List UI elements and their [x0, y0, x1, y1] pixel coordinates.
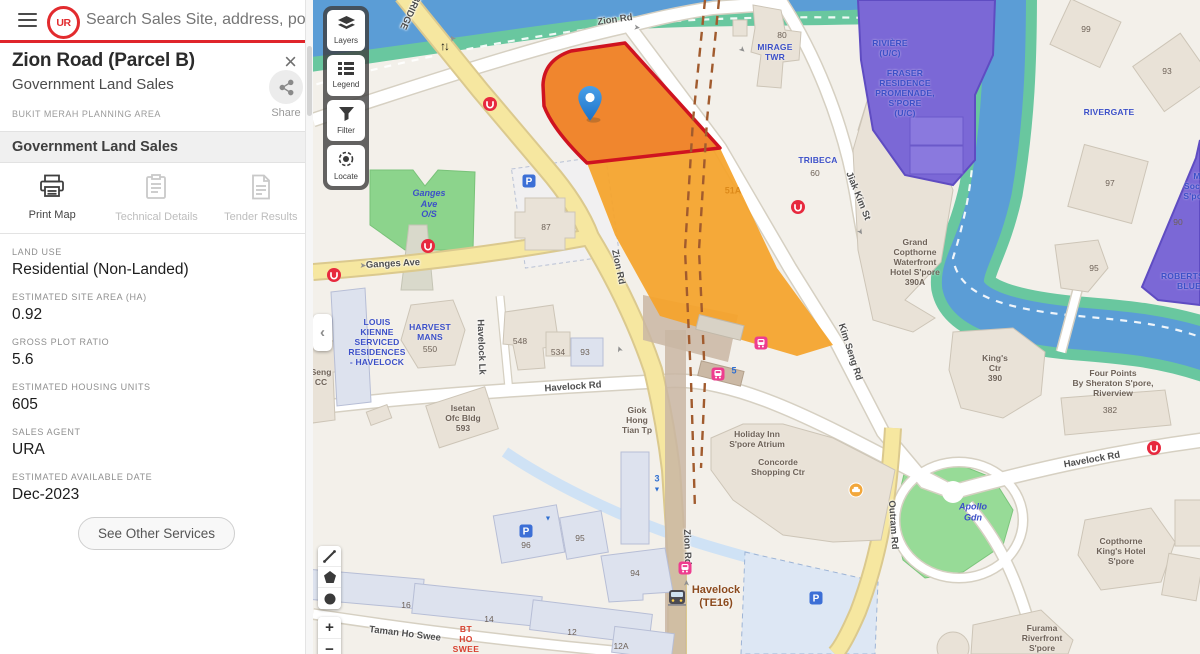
map-control-filter[interactable]: Filter	[327, 100, 365, 141]
section-header: Government Land Sales	[0, 131, 313, 163]
map-canvas[interactable]: Zion RdBRIDGEJiak Kim StKim Seng RdHavel…	[313, 0, 1200, 654]
app: Zion RdBRIDGEJiak Kim StKim Seng RdHavel…	[0, 0, 1200, 654]
subtitle: Government Land Sales	[12, 76, 299, 93]
pin-icon[interactable]	[577, 85, 604, 123]
app-header: UR Search Sales Site, address, postal co…	[0, 0, 313, 40]
share-icon	[269, 70, 303, 104]
blue-triangle-icon: ▼	[654, 487, 661, 494]
map-control-label: Locate	[334, 172, 358, 181]
zoom-control: + −	[318, 617, 341, 654]
scrollbar-thumb[interactable]	[307, 46, 312, 116]
detail-field: SALES AGENTURA	[12, 427, 301, 459]
action-label: Print Map	[0, 209, 104, 221]
share-label: Share	[269, 107, 303, 119]
side-panel: UR Search Sales Site, address, postal co…	[0, 0, 313, 654]
map-control-label: Legend	[333, 80, 360, 89]
tel-station-icon	[679, 562, 692, 575]
field-value: Residential (Non-Landed)	[12, 261, 301, 279]
road-arrow-icon: ➤	[684, 579, 691, 587]
parking-icon: P	[520, 525, 533, 538]
map-geography	[313, 0, 1200, 654]
blue-triangle-icon: ▼	[545, 516, 552, 523]
zoom-out-button[interactable]: −	[318, 639, 341, 654]
draw-tool-stack	[318, 546, 341, 609]
clipboard-icon	[104, 174, 208, 205]
page-title: Zion Road (Parcel B)	[12, 50, 299, 72]
road-arrow-icon: ➤	[617, 345, 624, 353]
share-button[interactable]: Share	[269, 70, 303, 119]
field-label: ESTIMATED AVAILABLE DATE	[12, 472, 301, 482]
tender-results-button: Tender Results	[209, 174, 313, 223]
detail-field: GROSS PLOT RATIO5.6	[12, 337, 301, 369]
action-label: Tender Results	[209, 211, 313, 223]
road-arrow-icon: ➤	[634, 24, 641, 32]
legend-icon	[338, 62, 354, 78]
parking-icon: P	[523, 175, 536, 188]
mrt-train-icon	[668, 590, 686, 606]
zoom-in-button[interactable]: +	[318, 617, 341, 639]
ura-badge-icon	[327, 268, 342, 283]
road-arrow-icon: ➤	[450, 34, 457, 42]
road-arrow-icon: ➤	[739, 46, 746, 54]
technical-details-button: Technical Details	[104, 174, 208, 223]
collapse-panel-button[interactable]: ‹	[313, 314, 332, 351]
field-label: SALES AGENT	[12, 427, 301, 437]
circle-tool[interactable]	[318, 588, 341, 609]
detail-field: LAND USEResidential (Non-Landed)	[12, 247, 301, 279]
field-value: 0.92	[12, 306, 301, 324]
svg-text:P: P	[526, 177, 533, 188]
map-control-legend[interactable]: Legend	[327, 55, 365, 96]
map-control-label: Layers	[334, 36, 358, 45]
see-other-services-button[interactable]: See Other Services	[78, 517, 235, 550]
field-label: ESTIMATED SITE AREA (HA)	[12, 292, 301, 302]
taxi-icon	[849, 483, 864, 498]
field-value: URA	[12, 441, 301, 459]
document-icon	[209, 174, 313, 205]
polygon-tool[interactable]	[318, 567, 341, 588]
svg-text:P: P	[813, 594, 820, 605]
map-control-layers[interactable]: Layers	[327, 10, 365, 51]
road-arrow-icon: ➤	[360, 262, 367, 270]
layers-icon	[338, 16, 355, 34]
ura-badge-icon	[1147, 441, 1162, 456]
map-control-label: Filter	[337, 126, 355, 135]
print-map-button[interactable]: Print Map	[0, 174, 104, 223]
scrollbar[interactable]	[305, 0, 313, 654]
map-control-stack: LayersLegendFilterLocate	[323, 6, 369, 190]
ura-logo[interactable]: UR	[47, 6, 80, 39]
ura-badge-icon	[483, 97, 498, 112]
field-label: LAND USE	[12, 247, 301, 257]
field-label: ESTIMATED HOUSING UNITS	[12, 382, 301, 392]
action-label: Technical Details	[104, 211, 208, 223]
filter-icon	[339, 107, 354, 124]
ura-badge-icon	[791, 200, 806, 215]
two-way-arrows-icon: ↑↓	[440, 40, 448, 52]
locate-icon	[338, 151, 354, 170]
detail-field: ESTIMATED HOUSING UNITS605	[12, 382, 301, 414]
printer-icon	[0, 174, 104, 203]
tel-station-icon	[755, 337, 768, 350]
field-value: 605	[12, 396, 301, 414]
field-value: 5.6	[12, 351, 301, 369]
field-label: GROSS PLOT RATIO	[12, 337, 301, 347]
parking-icon: P	[810, 592, 823, 605]
planning-area-label: BUKIT MERAH PLANNING AREA	[12, 109, 299, 119]
menu-icon[interactable]	[18, 13, 37, 31]
road-arrow-icon: ➤	[857, 228, 864, 236]
detail-field: ESTIMATED AVAILABLE DATEDec-2023	[12, 472, 301, 504]
measure-tool[interactable]	[318, 546, 341, 567]
search-input[interactable]: Search Sales Site, address, postal code	[86, 11, 308, 29]
tel-station-icon	[712, 368, 725, 381]
svg-text:P: P	[523, 527, 530, 538]
map-control-locate[interactable]: Locate	[327, 145, 365, 186]
field-value: Dec-2023	[12, 486, 301, 504]
ura-badge-icon	[421, 239, 436, 254]
detail-field: ESTIMATED SITE AREA (HA)0.92	[12, 292, 301, 324]
